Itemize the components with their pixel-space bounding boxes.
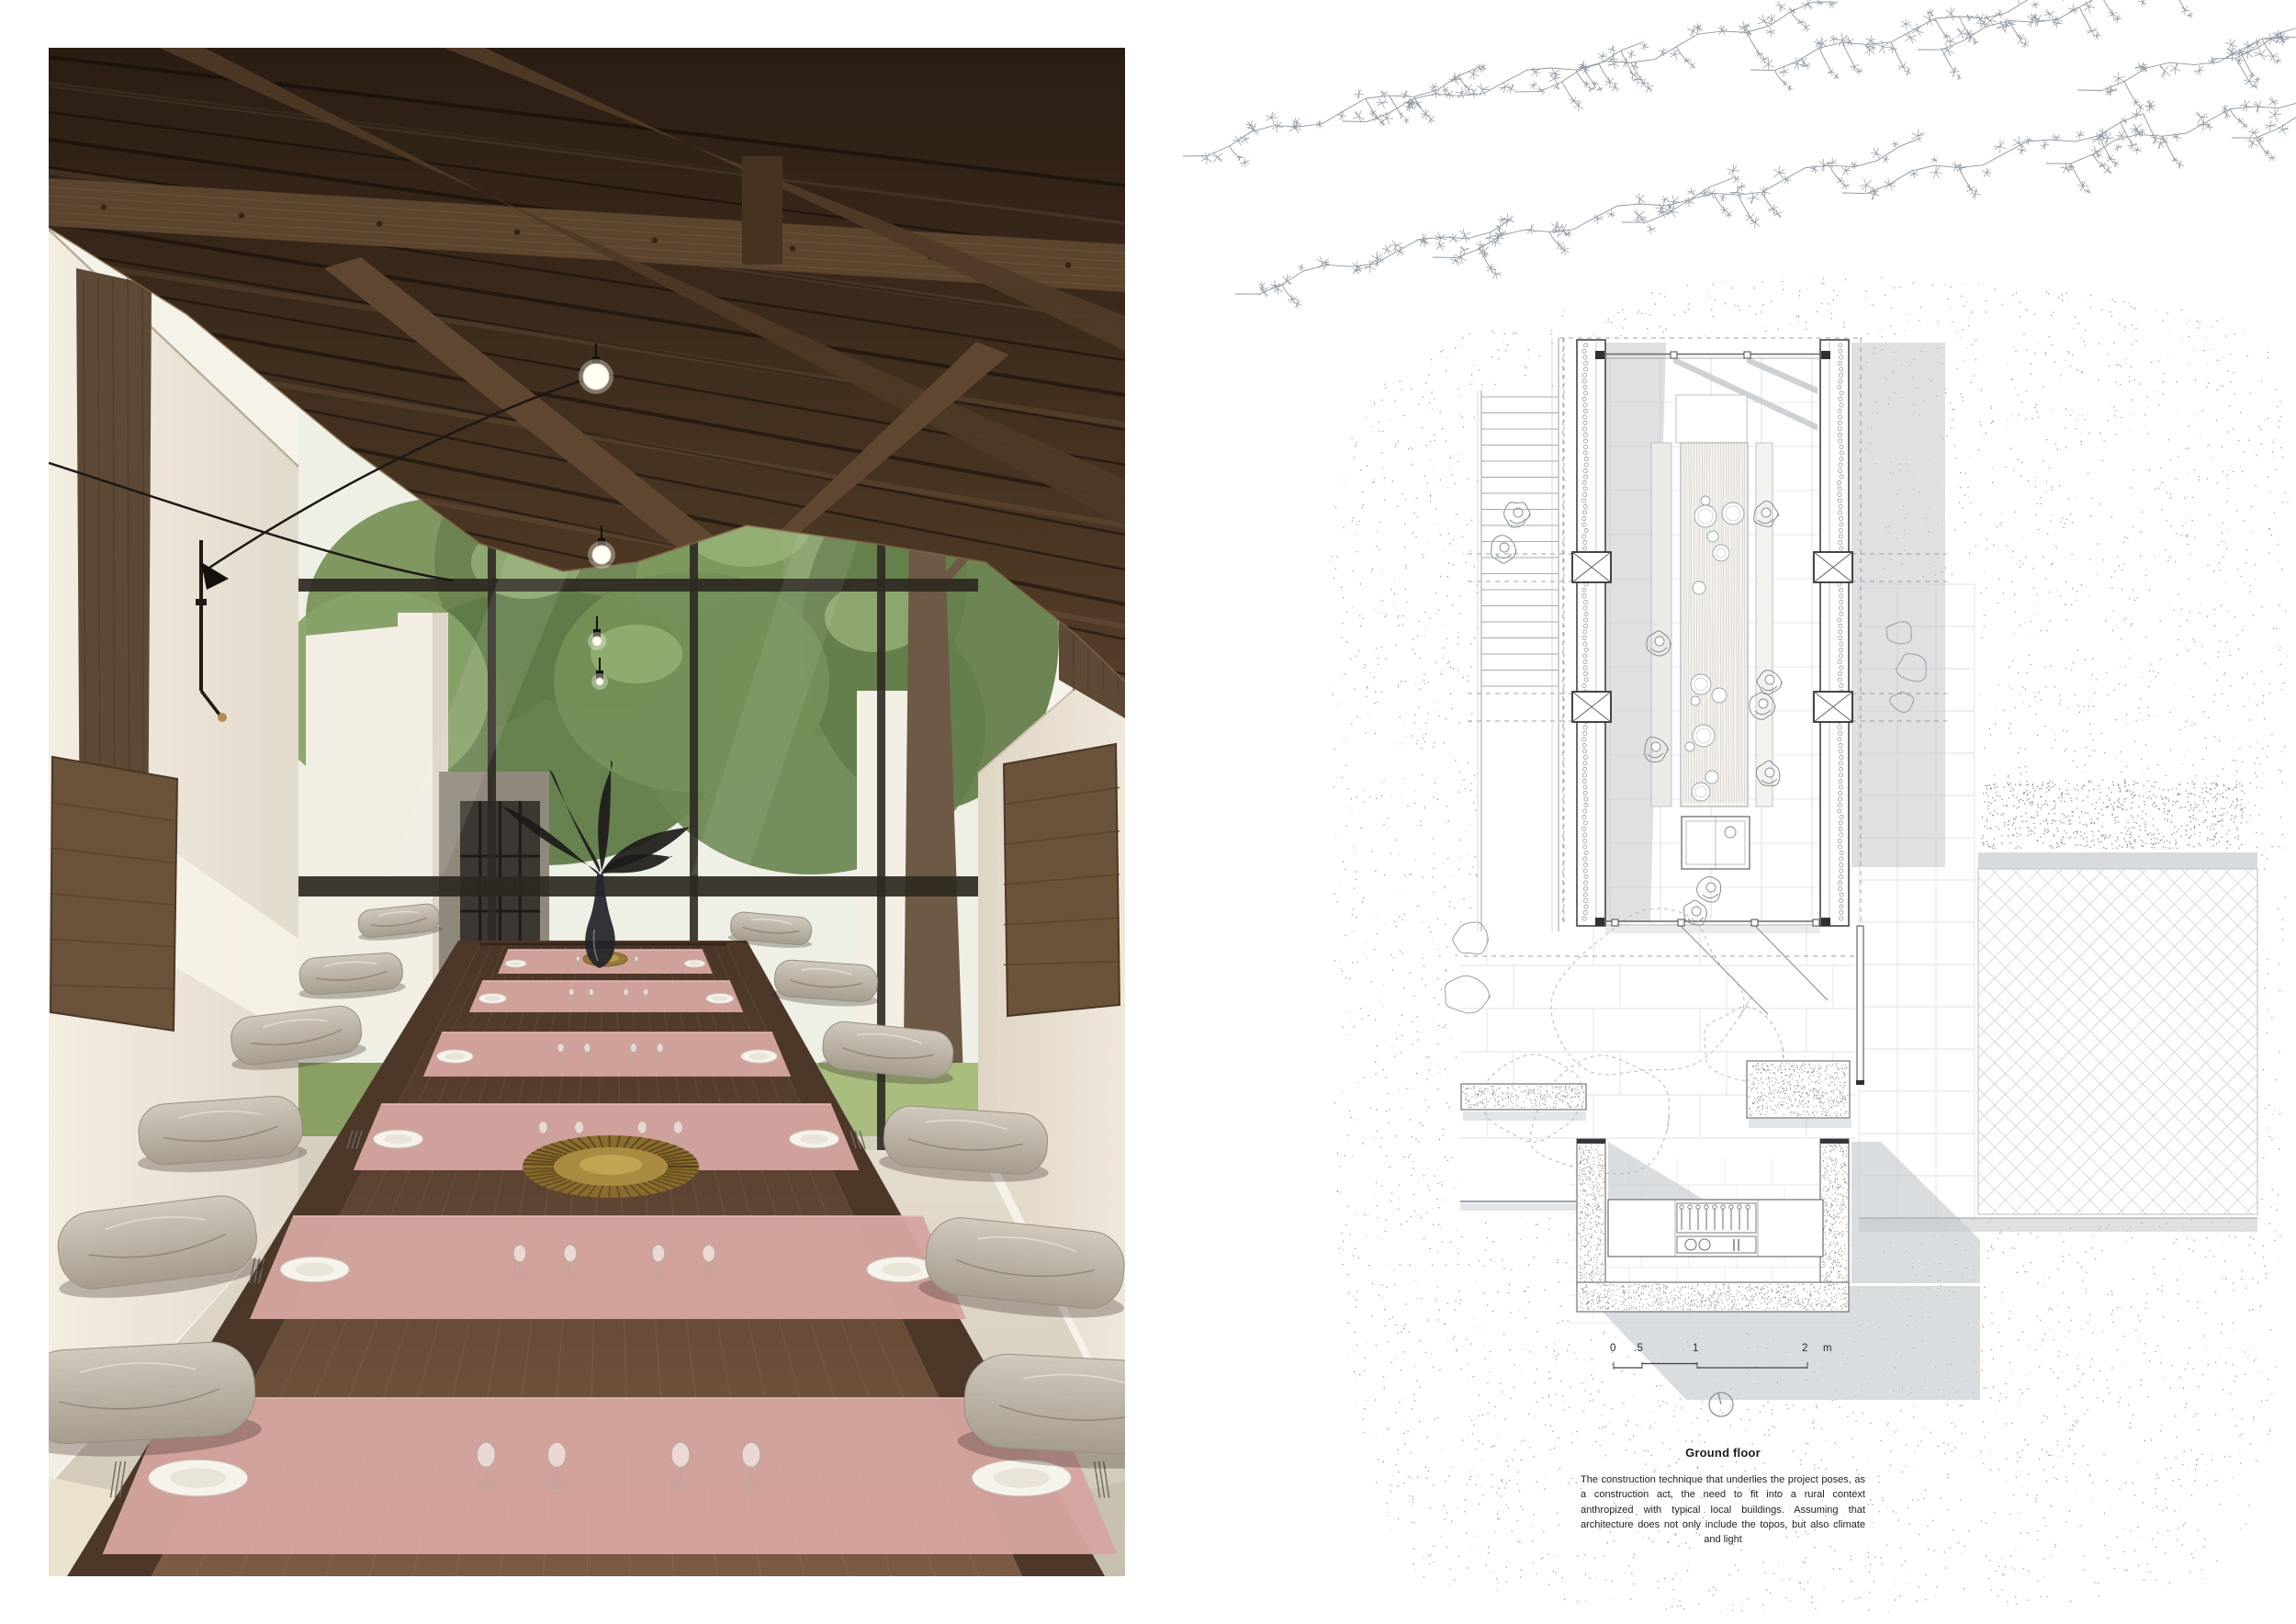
vine-branches-drawing xyxy=(1177,0,2296,320)
vine-branch xyxy=(1231,213,1522,321)
plate xyxy=(741,1050,778,1064)
scale-label-1: 1 xyxy=(1693,1343,1699,1354)
plan-title: Ground floor xyxy=(1616,1446,1829,1460)
plate xyxy=(684,960,705,967)
vine-branch xyxy=(1615,129,1935,254)
gold-centerpiece-bowl xyxy=(523,1135,699,1198)
floor-cushion xyxy=(49,1340,263,1462)
hung-wood-board-right xyxy=(1004,744,1120,1016)
vine-branch xyxy=(1745,0,2075,104)
scale-label-2: 2 xyxy=(1802,1343,1808,1354)
bottle-rack xyxy=(1677,1203,1756,1233)
vine-branch xyxy=(2229,108,2296,168)
dining-room-render-image xyxy=(49,48,1125,1576)
table-runner xyxy=(423,1032,791,1077)
vine-branch xyxy=(1338,39,1655,143)
plate xyxy=(505,960,526,967)
scale-label-05: .5 xyxy=(1634,1343,1643,1354)
plate xyxy=(437,1050,474,1064)
scale-label-0: 0 xyxy=(1610,1343,1616,1354)
plate xyxy=(706,994,734,1004)
ground-floor-plan xyxy=(1148,0,2296,1624)
vine-branch xyxy=(1836,98,2168,223)
plate xyxy=(478,994,506,1004)
vine-branch xyxy=(2074,17,2296,122)
vine-branch xyxy=(1508,0,1849,124)
vine-branch xyxy=(1426,164,1750,290)
ground-floor-plan-drawing xyxy=(1148,0,2296,1624)
scale-label-m: m xyxy=(1823,1343,1832,1354)
vine-branch xyxy=(2042,79,2296,201)
dining-room-render xyxy=(49,48,1125,1576)
table-runner xyxy=(469,981,744,1012)
hung-wood-board-left xyxy=(51,757,177,1031)
plan-caption: The construction technique that underlie… xyxy=(1581,1472,1865,1547)
presentation-board: 0 .5 1 2 m Ground floor The construction… xyxy=(0,0,2296,1624)
vine-branch xyxy=(1177,61,1496,180)
table-runner xyxy=(103,1398,1118,1554)
table-runner xyxy=(250,1216,966,1319)
